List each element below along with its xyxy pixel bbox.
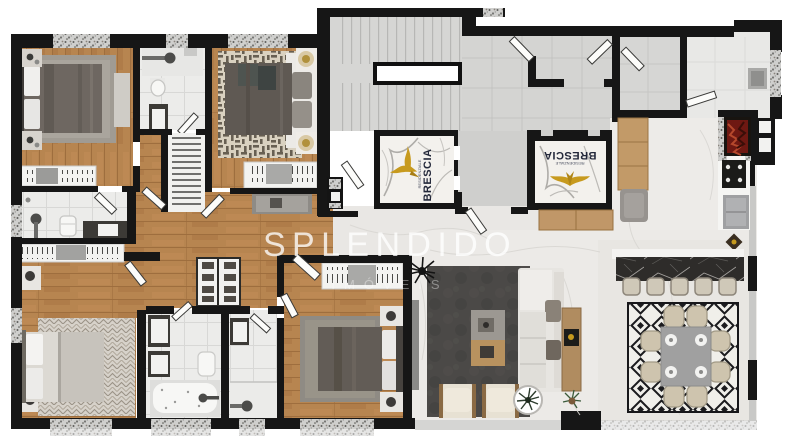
svg-text:RESIDENZIALE: RESIDENZIALE	[417, 159, 422, 188]
svg-text:BRESCIA: BRESCIA	[422, 148, 434, 201]
svg-text:RESIDENZIALE: RESIDENZIALE	[555, 161, 584, 166]
svg-text:IMÓVEIS: IMÓVEIS	[331, 277, 448, 292]
svg-text:BRESCIA: BRESCIA	[543, 149, 596, 161]
svg-text:SPLENDIDO: SPLENDIDO	[263, 226, 517, 264]
